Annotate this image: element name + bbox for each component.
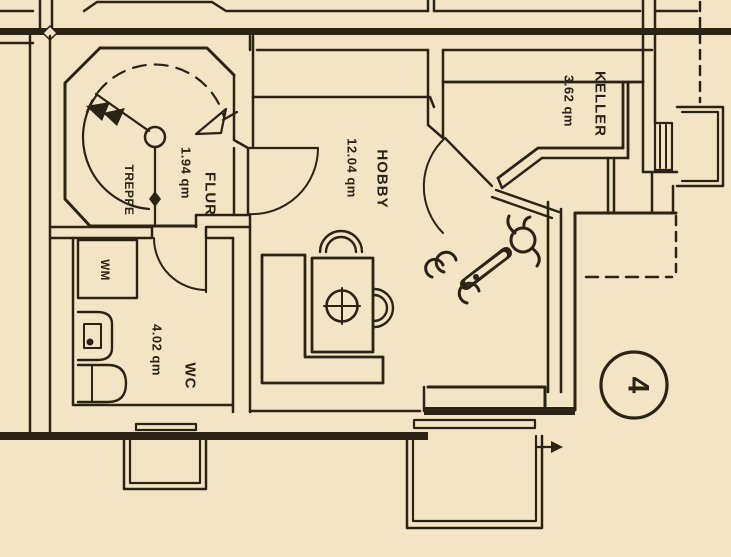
room-area-keller: 3.62 qm (562, 75, 577, 127)
sheet-marker: 4 (601, 352, 667, 418)
boiler (262, 231, 393, 383)
east-inner-wall (548, 202, 561, 392)
room-area-flur: 1.94 qm (179, 147, 194, 199)
bottom-outer-wall (0, 387, 575, 440)
floor-plan-drawing: WM TREPPE FLUR 1.94 qm HOBBY 12.04 qm KE… (0, 0, 731, 557)
window-well-east (655, 107, 723, 186)
floor-plan: WM TREPPE FLUR 1.94 qm HOBBY 12.04 qm KE… (0, 0, 731, 557)
room-area-hobby: 12.04 qm (345, 138, 360, 198)
washbasin (78, 312, 112, 360)
boiler-flue (320, 231, 362, 252)
stair-line-diamond (149, 191, 161, 207)
room-label-hobby: HOBBY (374, 149, 391, 208)
boiler-base (262, 255, 383, 383)
room-label-treppe: TREPPE (122, 164, 136, 215)
top-outer-wall (0, 0, 731, 43)
sheet-marker-number: 4 (622, 377, 655, 394)
right-outer-wall (575, 0, 677, 410)
door-wc (154, 238, 206, 292)
label-washing-machine: WM (98, 259, 110, 280)
stair-up-arrow (196, 109, 226, 134)
toilet (78, 365, 126, 402)
door-flur-hobby (248, 148, 318, 214)
door-hobby-keller (424, 138, 559, 233)
left-outer-wall (30, 36, 50, 436)
room-keller (443, 82, 643, 213)
boiler-burner (374, 289, 393, 327)
wall-wc-hobby (233, 215, 250, 412)
room-area-wc: 4.02 qm (150, 324, 165, 376)
room-label-flur: FLUR (202, 172, 219, 216)
stair-walkline-dashed (87, 65, 224, 117)
wall-flur-wc (50, 215, 250, 238)
room-label-keller: KELLER (592, 71, 609, 137)
room-wc (73, 238, 233, 405)
bicycle-rear-hook (426, 259, 443, 277)
bicycle (426, 216, 540, 303)
room-label-wc: WC (182, 363, 199, 390)
